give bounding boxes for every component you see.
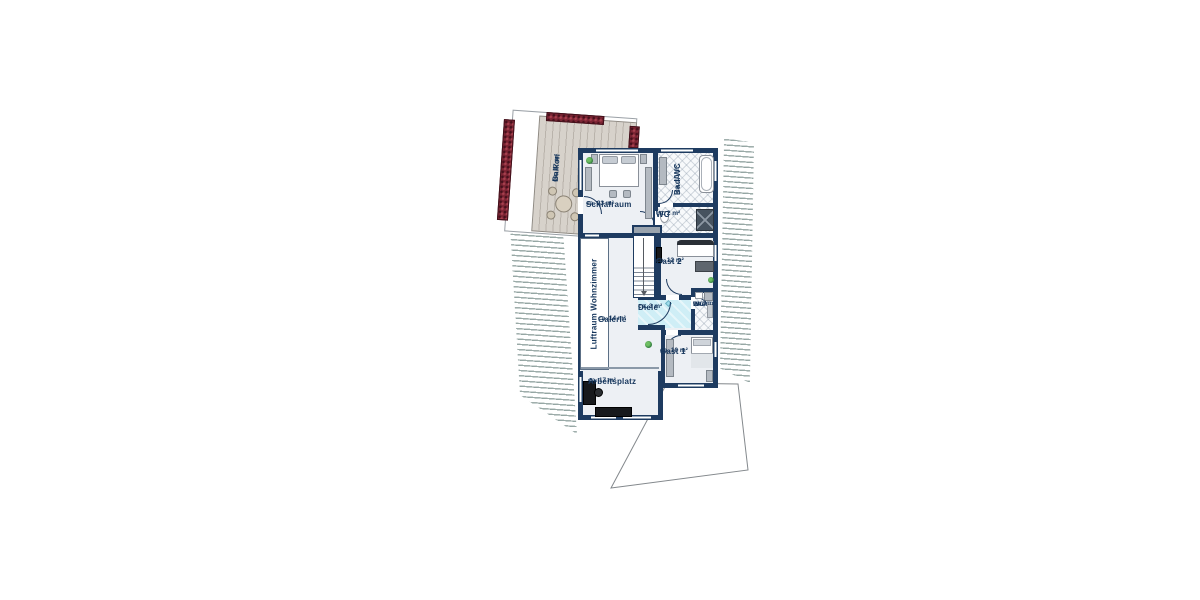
window — [714, 342, 717, 357]
stair-closet-top — [634, 227, 660, 233]
dresser-icon — [706, 370, 713, 382]
pillow-icon — [602, 156, 618, 164]
plant-icon — [645, 341, 652, 348]
stair-direction-line — [643, 238, 644, 291]
nightstand-icon — [640, 154, 647, 164]
roof-hatch-left — [506, 225, 580, 443]
pillow-icon — [621, 156, 636, 164]
window — [596, 149, 638, 152]
window — [714, 245, 717, 261]
window — [678, 384, 704, 387]
window — [714, 161, 717, 181]
wardrobe-icon — [666, 339, 674, 377]
desk-chair-icon — [594, 388, 603, 397]
wall — [658, 371, 663, 420]
window — [579, 160, 582, 190]
room-label-bad: Bad/WC ca. 10 m² — [658, 157, 698, 201]
bed-headboard — [677, 240, 714, 245]
toilet-icon — [695, 292, 703, 299]
room-label-luftraum: Luftraum Wohnzimmer — [529, 290, 661, 319]
window — [661, 149, 693, 152]
plant-icon — [708, 277, 714, 283]
chair-icon — [623, 190, 631, 198]
window — [579, 377, 582, 402]
rug-icon — [695, 261, 714, 272]
wardrobe-icon — [645, 167, 652, 219]
pillow-icon — [693, 339, 711, 346]
door-opening — [578, 197, 583, 214]
flower-box-right — [628, 126, 640, 149]
door-opening — [666, 295, 679, 300]
chair-icon — [609, 190, 617, 198]
gallery-edge-line — [581, 367, 659, 369]
door-opening — [666, 330, 678, 335]
blanket — [691, 353, 713, 368]
shower-icon — [696, 209, 714, 231]
washbasin-icon — [704, 292, 713, 301]
floorplan-upper-floor: Balkon ca. 17 m² — [498, 105, 808, 505]
cabinet-icon — [595, 407, 632, 417]
floorplan-canvas: Balkon ca. 17 m² — [0, 0, 1200, 600]
dresser-icon — [585, 167, 592, 191]
plant-icon — [586, 157, 593, 164]
window — [585, 234, 599, 237]
bathtub-inner — [701, 157, 712, 191]
roof-hatch-right — [720, 138, 754, 383]
